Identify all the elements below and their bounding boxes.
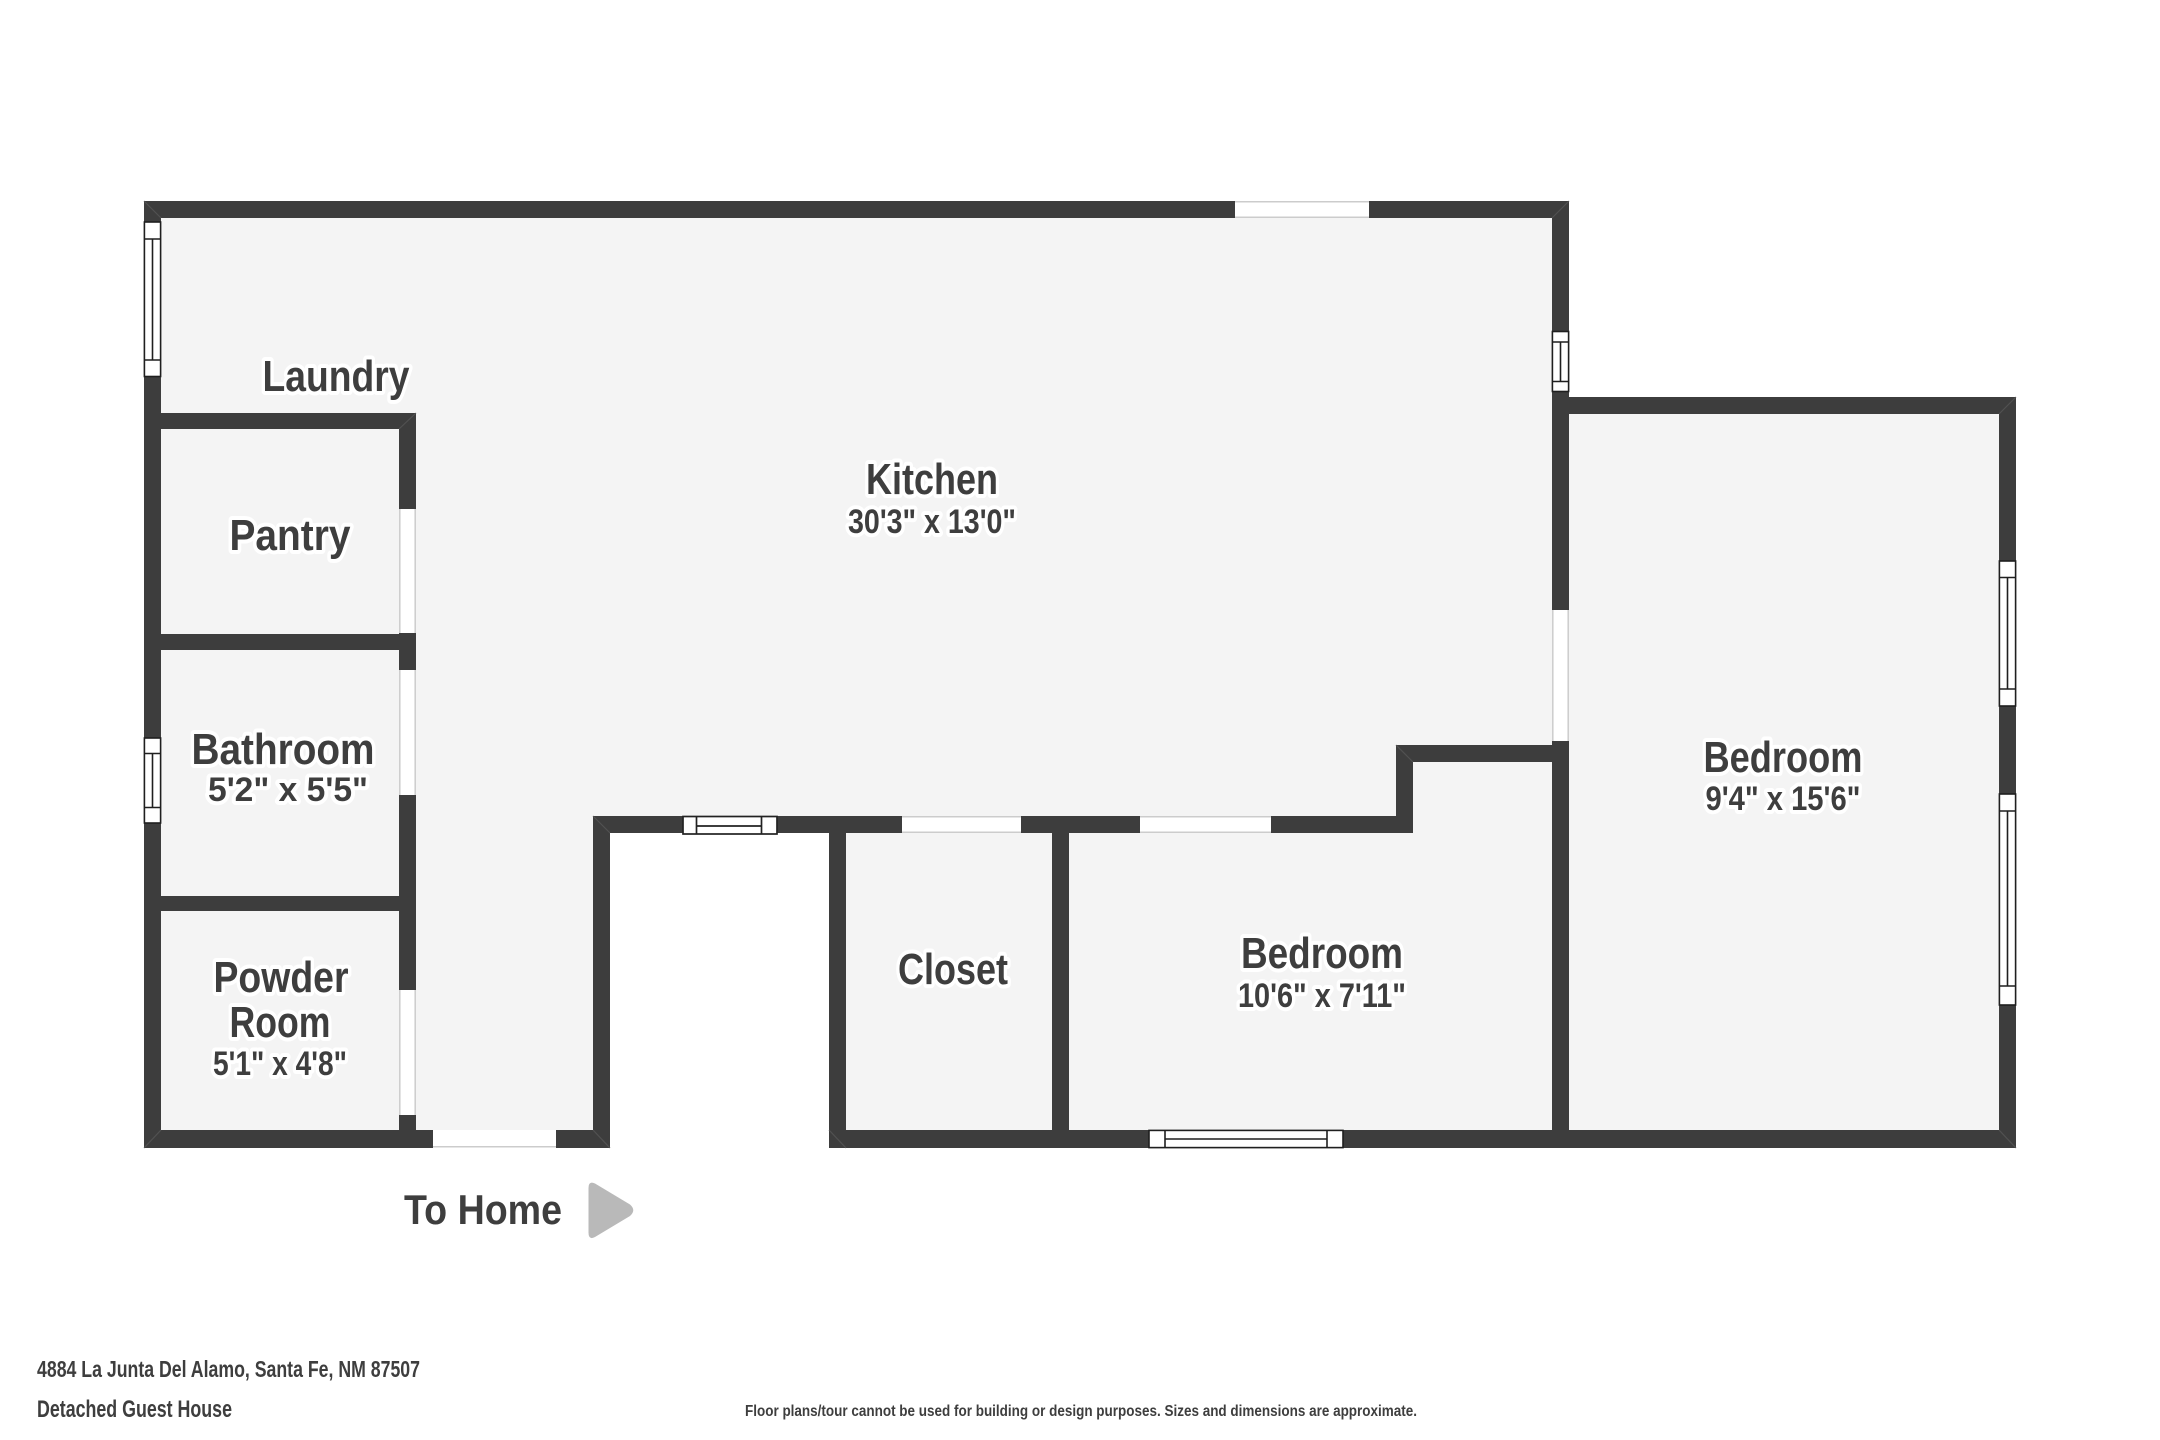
svg-text:Bathroom: Bathroom [192, 725, 375, 774]
svg-text:Closet: Closet [898, 945, 1008, 994]
svg-text:Room: Room [230, 998, 331, 1047]
svg-text:4884 La Junta Del Alamo, Santa: 4884 La Junta Del Alamo, Santa Fe, NM 87… [37, 1356, 420, 1382]
svg-text:30'3" x 13'0": 30'3" x 13'0" [848, 503, 1016, 541]
svg-text:Floor plans/tour cannot be use: Floor plans/tour cannot be used for buil… [745, 1403, 1417, 1420]
svg-text:Laundry: Laundry [263, 352, 410, 401]
svg-text:10'6" x 7'11": 10'6" x 7'11" [1238, 977, 1406, 1015]
svg-text:To Home: To Home [404, 1186, 562, 1233]
svg-text:Detached Guest House: Detached Guest House [37, 1396, 232, 1423]
svg-text:5'1" x 4'8": 5'1" x 4'8" [213, 1045, 347, 1083]
svg-text:9'4" x 15'6": 9'4" x 15'6" [1706, 780, 1861, 818]
svg-text:5'2" x 5'5": 5'2" x 5'5" [208, 771, 368, 809]
svg-text:Bedroom: Bedroom [1241, 929, 1403, 978]
svg-text:Powder: Powder [214, 953, 349, 1002]
svg-text:Bedroom: Bedroom [1704, 733, 1863, 782]
svg-text:Kitchen: Kitchen [866, 455, 998, 504]
svg-text:Pantry: Pantry [230, 511, 351, 560]
